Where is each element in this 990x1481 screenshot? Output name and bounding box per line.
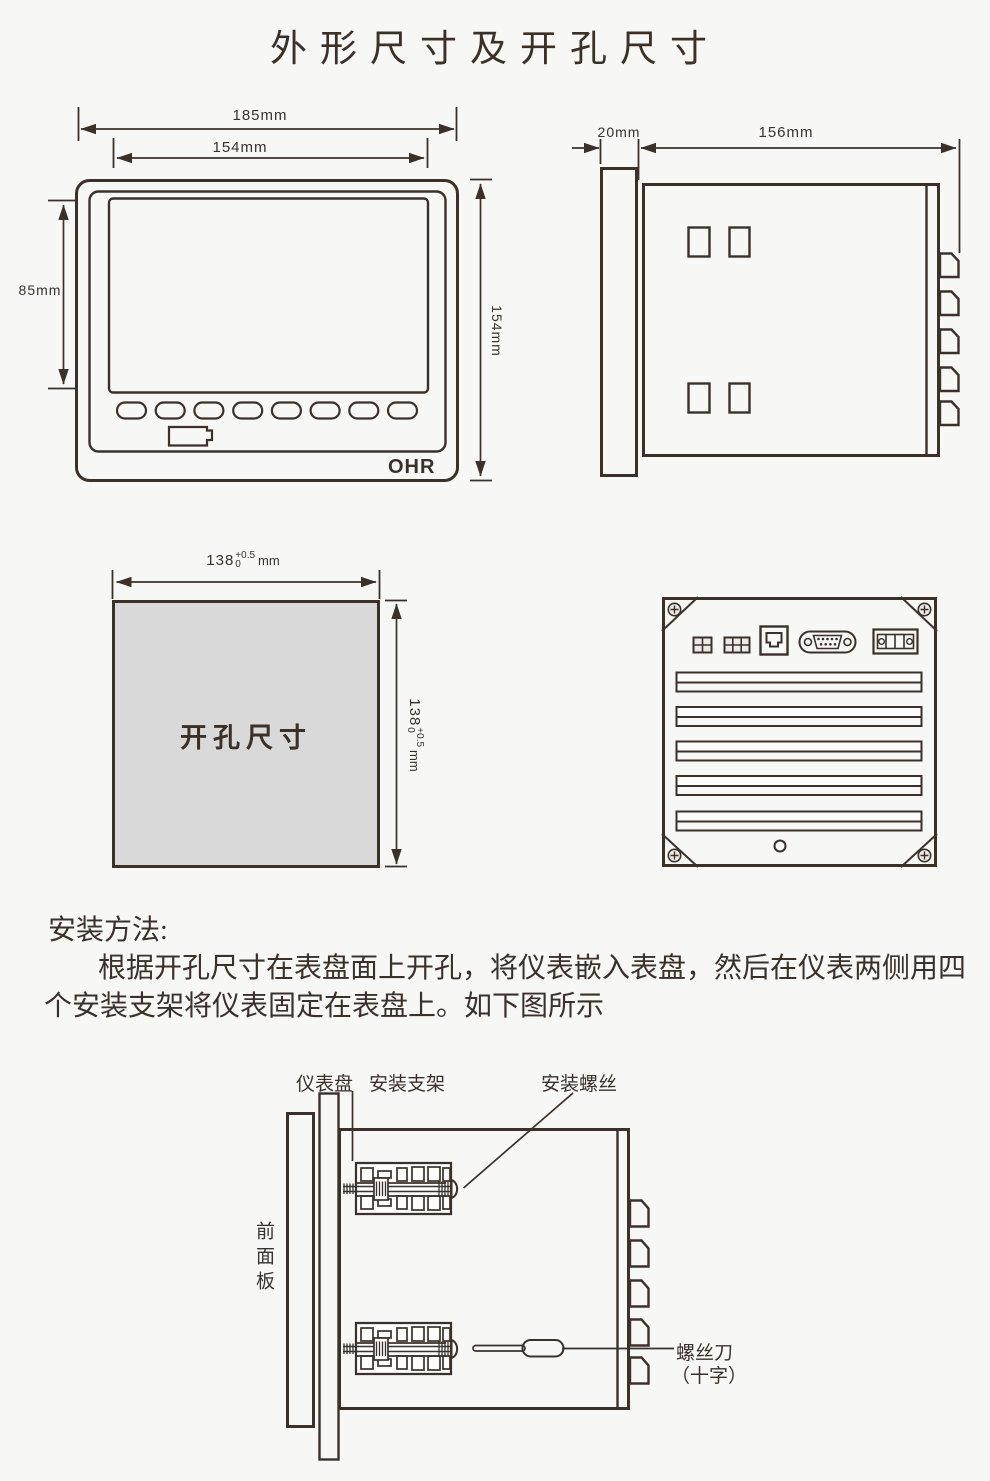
install-paragraph-line1: 根据开孔尺寸在表盘面上开孔，将仪表嵌入表盘，然后在仪表两侧用四 (98, 946, 966, 986)
ground-hole (775, 841, 786, 852)
connector-grid-2x3 (725, 638, 750, 653)
terminal-strips (677, 673, 922, 831)
diagram-terminal-blocks (630, 1201, 649, 1384)
cutout-width-tolerance: +0.50 (235, 551, 255, 569)
serial-port-db9 (800, 632, 856, 653)
side-terminal-blocks (940, 254, 959, 426)
front-height-screen-dim: 85mm (18, 282, 62, 298)
cutout-width-unit: mm (258, 553, 280, 568)
usb-cover (169, 427, 212, 446)
cutout-label: 开孔尺寸 (113, 716, 379, 755)
side-view-graphic (560, 95, 990, 490)
label-screwdriver-type: （十字） (671, 1361, 747, 1388)
mounting-bracket-bottom (343, 1323, 457, 1374)
device-inner-frame (90, 192, 446, 452)
cutout-width-dim: 138 +0.50 mm (148, 548, 338, 572)
side-view-extension-lines (601, 139, 960, 253)
ohr-logo: OHR (388, 456, 435, 479)
front-view-extension-lines (48, 107, 492, 481)
back-panel-graphic (650, 588, 950, 880)
side-depth-panel-dim: 20mm (589, 124, 649, 140)
mounting-bracket-top (343, 1163, 457, 1214)
cutout-height-value: 138 (407, 698, 424, 726)
front-width-inner-dim: 154mm (178, 139, 302, 156)
front-width-outer-dim: 185mm (198, 107, 322, 124)
db9-pins (817, 638, 838, 646)
front-height-outer-dim: 154mm (489, 296, 505, 366)
connector-grid-2x2 (694, 638, 712, 653)
ethernet-port (761, 627, 788, 655)
cutout-height-unit: mm (408, 750, 423, 772)
power-terminal (874, 630, 918, 654)
label-mounting-screw: 安装螺丝 (541, 1069, 617, 1096)
side-depth-body-dim: 156mm (726, 124, 846, 141)
label-mounting-bracket: 安装支架 (369, 1069, 445, 1096)
page: 外形尺寸及开孔尺寸 185mm 154mm 85mm 154mm OHR (0, 0, 990, 1481)
install-paragraph-line2: 个安装支架将仪表固定在表盘上。如下图所示 (44, 984, 604, 1024)
install-diagram-graphic (0, 1060, 990, 1481)
diagram-front-panel (288, 1114, 314, 1427)
device-outer-frame (77, 181, 458, 481)
cutout-graphic (80, 540, 440, 885)
cutout-height-dim: 138 +0.50 mm (403, 680, 427, 790)
install-heading: 安装方法: (48, 908, 168, 948)
screwdriver (473, 1340, 564, 1357)
label-instrument-panel: 仪表盘 (296, 1069, 353, 1096)
cutout-width-value: 138 (206, 552, 234, 569)
device-screen (109, 199, 428, 393)
side-front-panel (602, 169, 637, 476)
side-body-slots (689, 228, 750, 413)
side-body (644, 185, 939, 456)
device-buttons (117, 403, 417, 419)
label-front-panel: 前面板 (250, 1221, 277, 1296)
page-title: 外形尺寸及开孔尺寸 (0, 18, 990, 72)
cutout-height-tolerance: +0.50 (406, 727, 424, 747)
diagram-mounting-panel (320, 1094, 339, 1460)
